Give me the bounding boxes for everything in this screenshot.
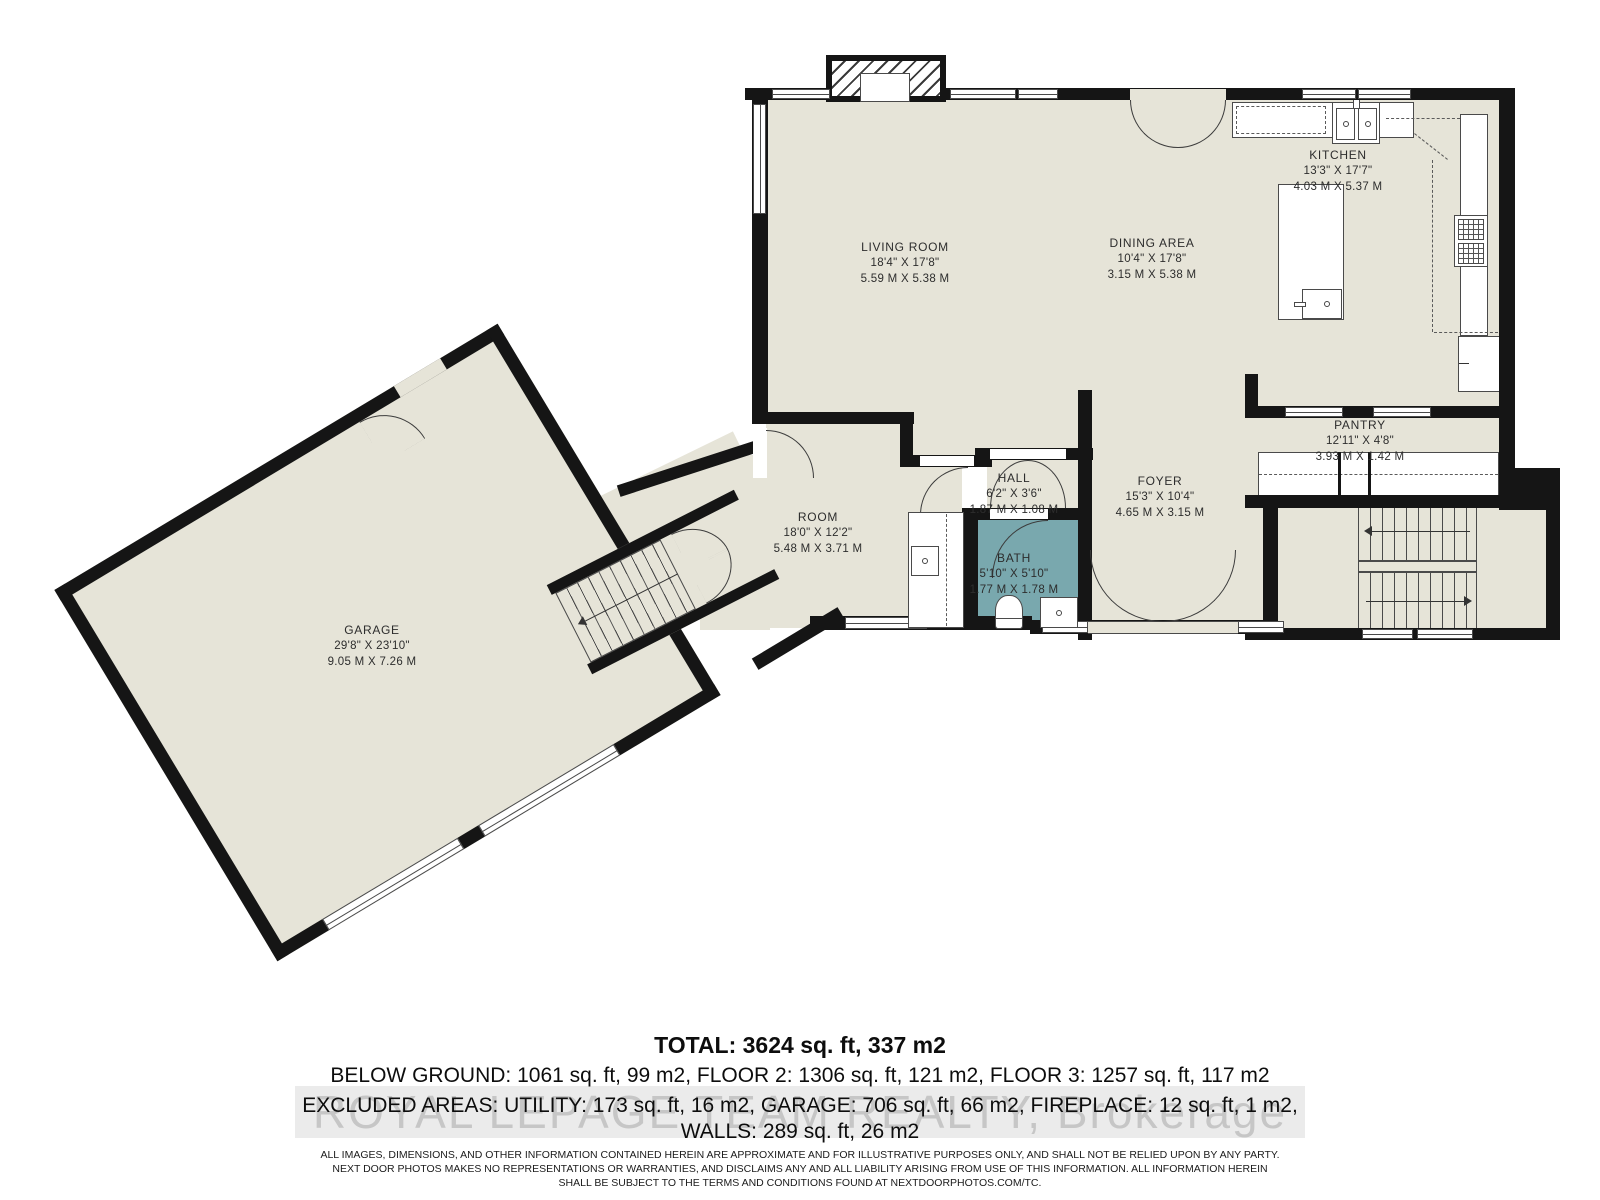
room-name: BATH (970, 550, 1059, 566)
wall-foyer-stairwell (1263, 498, 1278, 640)
room-dim-metric: 3.15 M X 5.38 M (1108, 267, 1197, 283)
room-label-foyer: FOYER 15'3" X 10'4" 4.65 M X 3.15 M (1116, 473, 1205, 521)
closet-shelf-box (911, 546, 939, 576)
room-dim-imperial: 5'10" X 5'10" (970, 566, 1059, 582)
room-label-hall: HALL 6'2" X 3'6" 1.87 M X 1.08 M (970, 470, 1059, 518)
room-label-bath: BATH 5'10" X 5'10" 1.77 M X 1.78 M (970, 550, 1059, 598)
summary-total: TOTAL: 3624 sq. ft, 337 m2 (0, 1032, 1600, 1059)
room-name: FOYER (1116, 473, 1205, 489)
room-name: LIVING ROOM (861, 239, 950, 255)
room-name: KITCHEN (1294, 147, 1383, 163)
room-dim-metric: 4.03 M X 5.37 M (1294, 179, 1383, 195)
garage-door-left (322, 838, 464, 931)
room-label-dining: DINING AREA 10'4" X 17'8" 3.15 M X 5.38 … (1108, 235, 1197, 283)
fridge-icon (1458, 336, 1502, 392)
wall-pantry-stub (1245, 374, 1258, 418)
room-dim-imperial: 18'4" X 17'8" (861, 255, 950, 271)
patio-door-gap (1130, 89, 1226, 100)
sink-faucet (1353, 99, 1360, 109)
room-dim-imperial: 18'0" X 12'2" (774, 525, 863, 541)
room-label-living: LIVING ROOM 18'4" X 17'8" 5.59 M X 5.38 … (861, 239, 950, 287)
wall-hall-foyer (1078, 448, 1092, 640)
stairs-down-arrow-line (1366, 601, 1464, 602)
room-label-kitchen: KITCHEN 13'3" X 17'7" 4.03 M X 5.37 M (1294, 147, 1383, 195)
toilet-icon (995, 595, 1023, 629)
kitchen-sink (1332, 102, 1380, 144)
window-left-living (753, 104, 766, 214)
fireplace-firebox (860, 73, 910, 102)
wall-right-kitchen (1499, 96, 1515, 480)
room-door-gap (753, 428, 767, 478)
summary-excluded: EXCLUDED AREAS: UTILITY: 173 sq. ft, 16 … (0, 1094, 1600, 1118)
window-top-dining-2 (1018, 89, 1058, 99)
upper-cabinet-dashed (1236, 106, 1326, 134)
sink-basin-left (1336, 108, 1355, 140)
hall-doors-gap (990, 449, 1066, 459)
counter-dashed-bottom (1434, 332, 1498, 333)
closet-rod-dashed (946, 514, 947, 626)
stove-burners-top (1458, 219, 1484, 240)
stairs-upper-flight (1358, 503, 1477, 561)
room-dim-metric: 5.48 M X 3.71 M (774, 541, 863, 557)
wall-right-lower (1546, 480, 1560, 640)
room-name: ROOM (774, 509, 863, 525)
entry-door-gap (1088, 621, 1238, 634)
summary-walls: WALLS: 289 sq. ft, 26 m2 (0, 1120, 1600, 1144)
room-dim-imperial: 15'3" X 10'4" (1116, 489, 1205, 505)
disclaimer-line-1: ALL IMAGES, DIMENSIONS, AND OTHER INFORM… (0, 1149, 1600, 1163)
counter-dashed-right (1432, 160, 1433, 332)
cabinet-dashed-top-right (1386, 118, 1460, 119)
room-dim-imperial: 13'3" X 17'7" (1294, 163, 1383, 179)
room-name: GARAGE (328, 622, 417, 638)
wall-room-divider (752, 412, 914, 424)
room-dim-imperial: 10'4" X 17'8" (1108, 251, 1197, 267)
room-name: DINING AREA (1108, 235, 1197, 251)
dishwasher-icon (1302, 289, 1342, 319)
stove-burners-bottom (1458, 243, 1484, 264)
room-dim-metric: 1.87 M X 1.08 M (970, 502, 1059, 518)
room-name: HALL (970, 470, 1059, 486)
room-dim-imperial: 6'2" X 3'6" (970, 486, 1059, 502)
entry-sidelight-right (1238, 621, 1284, 633)
room-name: PANTRY (1316, 417, 1405, 433)
garage-entry-door-gap (394, 358, 447, 397)
room-dim-metric: 1.77 M X 1.78 M (970, 582, 1059, 598)
disclaimer-line-3: SHALL BE SUBJECT TO THE TERMS AND CONDIT… (0, 1177, 1600, 1191)
stove-icon (1454, 215, 1488, 267)
window-top-living (772, 89, 830, 99)
window-stairwell-2 (1417, 629, 1473, 639)
dishwasher-handle (1294, 302, 1306, 307)
toilet-tank-line (996, 618, 1022, 619)
pantry-door-gap-right (1373, 407, 1431, 417)
room-dim-metric: 9.05 M X 7.26 M (328, 654, 417, 670)
summary-floors: BELOW GROUND: 1061 sq. ft, 99 m2, FLOOR … (0, 1064, 1600, 1088)
room-label-room: ROOM 18'0" X 12'2" 5.48 M X 3.71 M (774, 509, 863, 557)
room-dim-metric: 4.65 M X 3.15 M (1116, 505, 1205, 521)
room-dim-imperial: 29'8" X 23'10" (328, 638, 417, 654)
stairs-up-arrow-line (1372, 531, 1470, 532)
fridge-divider (1459, 363, 1469, 364)
pantry-door-gap-left (1285, 407, 1343, 417)
room-label-pantry: PANTRY 12'11" X 4'8" 3.93 M X 1.42 M (1316, 417, 1405, 465)
stairs-down-arrow-icon (1464, 596, 1472, 606)
window-top-dining-1 (950, 89, 1016, 99)
pantry-shelf-dashed (1259, 474, 1498, 475)
floor-plan-page: LIVING ROOM 18'4" X 17'8" 5.59 M X 5.38 … (0, 0, 1600, 1200)
stairs-landing-divider (1358, 561, 1477, 572)
disclaimer-line-2: NEXT DOOR PHOTOS MAKES NO REPRESENTATION… (0, 1163, 1600, 1177)
dishwasher-knob (1323, 300, 1331, 308)
room-dim-imperial: 12'11" X 4'8" (1316, 433, 1405, 449)
room-dim-metric: 5.59 M X 5.38 M (861, 271, 950, 287)
sink-basin-right (1358, 108, 1377, 140)
room-label-garage: GARAGE 29'8" X 23'10" 9.05 M X 7.26 M (328, 622, 417, 670)
room-hall-door-gap (920, 456, 974, 466)
garage-door-right (478, 744, 620, 837)
window-stairwell-1 (1362, 629, 1413, 639)
window-top-kitchen-2 (1358, 89, 1411, 99)
window-top-kitchen-1 (1302, 89, 1356, 99)
bath-sink-icon (1040, 597, 1078, 628)
room-dim-metric: 3.93 M X 1.42 M (1316, 449, 1405, 465)
garage-wall-left (54, 583, 288, 961)
stairs-up-arrow-icon (1364, 526, 1372, 536)
